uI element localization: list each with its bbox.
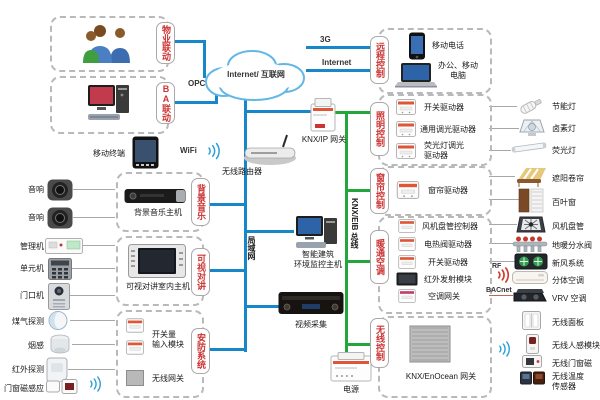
hvac-tab: 暖通空调 [370, 230, 389, 284]
property-link-line [172, 40, 206, 43]
wireless-panel-icon [522, 311, 541, 330]
security-link-line [206, 348, 246, 351]
connector-line [70, 295, 115, 296]
wireless-waves-icon [497, 338, 511, 360]
remote-tab: 远程控制 [370, 36, 389, 84]
power-label: 电源 [336, 385, 366, 395]
din-module-icon [398, 219, 416, 233]
curtain-driver-label: 窗帘驱动器 [428, 186, 468, 196]
vrv-ac-label: VRV 空调 [552, 294, 587, 304]
router-label: 无线路由器 [212, 167, 272, 177]
intercom-link-line [206, 269, 246, 272]
cfl-lamp-icon [516, 96, 546, 116]
building-host-pc-icon [294, 216, 342, 250]
fancoil-ctrl-label: 风机盘管控制器 [422, 222, 478, 232]
enocean-chip-icon [408, 324, 452, 364]
fresh-air-icon [514, 253, 548, 270]
split-ac-label: 分体空调 [552, 276, 584, 286]
office-pc-label: 办公、移动 电脑 [432, 61, 484, 80]
halogen-lamp-label: 卤素灯 [552, 124, 576, 134]
wifi-router-icon [243, 134, 297, 166]
din-module-icon [396, 121, 416, 137]
bacnet-label: BACnet [486, 286, 512, 296]
smoke-detector-icon [48, 334, 72, 356]
knxip-link-line [246, 110, 312, 113]
property-tab: 物业联动 [156, 22, 175, 64]
unit-machine-icon [48, 258, 72, 280]
wifi-label: WiFi [180, 146, 197, 156]
cloud-label: Internet/ 互联网 [210, 70, 302, 80]
wireless-tab: 无线控制 [370, 318, 389, 368]
wifi-waves-icon [206, 141, 221, 161]
intercom-host-label: 可视对讲室内主机 [118, 282, 198, 292]
security-tab: 安防系统 [191, 328, 210, 374]
connector-line [72, 268, 115, 269]
wireless-door-magnet-label: 无线门窗磁 [552, 359, 592, 369]
vrv-ac-icon [512, 287, 548, 303]
hvac-switch-driver-label: 开关驱动器 [428, 258, 468, 268]
connector-line [81, 245, 115, 246]
speaker-icon [47, 207, 73, 229]
music-host-icon [124, 188, 186, 204]
blinds-icon [518, 188, 544, 213]
gas-detector-icon [46, 311, 70, 330]
people-icon [82, 23, 137, 63]
din-module-icon [126, 318, 144, 333]
awning-icon [514, 166, 548, 188]
din-module-icon [396, 143, 416, 159]
building-host-label: 智能建筑 环境监控主机 [290, 250, 346, 269]
management-unit-icon [45, 238, 83, 254]
mobile-terminal-label: 移动终端 [93, 149, 125, 159]
connector-line [70, 320, 115, 321]
fl-dim-driver-label: 荧光灯调光 驱动器 [424, 141, 464, 160]
fluorescent-tube-icon [510, 141, 548, 154]
ir-emitter-icon [396, 272, 418, 286]
fan-coil-icon [516, 214, 546, 235]
connector-line [73, 217, 115, 218]
internet-cloud: Internet/ 互联网 [196, 44, 314, 106]
valve-driver-label: 电热阀驱动器 [424, 240, 472, 250]
door-magnet-icon [46, 379, 78, 394]
connector-line [73, 189, 115, 190]
video-capture-icon [278, 290, 344, 316]
wireless-temp-sensor-icon [520, 371, 545, 385]
wireless-pir-label: 无线人感模块 [552, 341, 600, 351]
knx-bus-label: KNX/EIB 总线 [350, 198, 359, 249]
cfl-lamp-label: 节能灯 [552, 102, 576, 112]
tablet-icon [132, 136, 159, 169]
rf-waves-icon [496, 266, 510, 284]
wireless-gw-label: 无线网关 [152, 374, 184, 384]
knx-bus-line [345, 111, 348, 357]
wireless-pir-icon [526, 334, 539, 354]
curtain-branch-line [346, 189, 372, 192]
speaker-label: 音响 [2, 185, 44, 195]
door-station-icon [48, 283, 70, 310]
curtain-tab: 窗帘控制 [370, 168, 389, 214]
manifold-icon [512, 234, 548, 252]
din-module-icon [396, 99, 416, 115]
halogen-lamp-icon [518, 118, 546, 138]
door-station-label: 门口机 [2, 291, 44, 301]
opc-label: OPC [188, 79, 205, 89]
ac-gateway-label: 空调网关 [428, 292, 460, 302]
connector-line [72, 344, 115, 345]
din-module-icon [396, 181, 420, 199]
connector-line [489, 150, 511, 151]
intercom-tab: 可视对讲 [191, 248, 210, 296]
video-link-line [246, 305, 280, 308]
connector-line [68, 369, 115, 370]
fluorescent-label: 荧光灯 [552, 146, 576, 156]
enocean-gw-label: KNX/EnOcean 网关 [396, 372, 486, 382]
connector-line [489, 176, 515, 177]
wireless-panel-label: 无线面板 [552, 318, 584, 328]
connector-line [489, 106, 517, 107]
connector-line [489, 128, 519, 129]
awning-label: 遮阳卷帘 [552, 174, 584, 184]
blinds-label: 百叶窗 [552, 198, 576, 208]
ba-tab: BA联动 [156, 82, 175, 124]
music-link-line [206, 203, 246, 206]
gas-detector-label: 煤气探测 [2, 317, 44, 327]
lighting-tab: 照明控制 [370, 102, 389, 156]
dim-driver-label: 通用调光驱动器 [420, 125, 476, 135]
pir-detector-label: 红外探测 [2, 365, 44, 375]
internet-label: Internet [322, 58, 351, 68]
split-ac-icon [512, 271, 548, 284]
din-module-icon [398, 289, 416, 303]
knx-smart-building-diagram: { "cloud": { "label": "Internet/ 互联网" },… [0, 0, 600, 400]
wireless-gateway-icon [126, 370, 144, 386]
connector-line [489, 199, 519, 200]
g3-label: 3G [320, 35, 331, 45]
wireless-temp-sensor-label: 无线温度 传感器 [552, 372, 584, 391]
music-host-label: 背景音乐主机 [116, 208, 200, 218]
connector-line [489, 224, 517, 225]
smoke-detector-label: 烟感 [2, 341, 44, 351]
desktop-pc-icon [86, 83, 134, 125]
host-link-line [246, 230, 294, 233]
knx-ip-gateway-icon [310, 98, 336, 132]
speaker-icon [47, 179, 73, 201]
connector-line [489, 243, 513, 244]
door-magnet-label: 门窗磁感应 [2, 384, 44, 394]
g3-line [306, 46, 371, 49]
internet-line [306, 69, 371, 72]
din-module-icon [398, 237, 416, 251]
power-supply-icon [330, 352, 372, 382]
wireless-waves-icon [88, 374, 102, 394]
unit-machine-label: 单元机 [2, 264, 44, 274]
mobile-phone-icon [408, 32, 426, 60]
di-module-label: 开关量 输入模块 [152, 330, 184, 349]
knx-ip-gw-label: KNX/IP 网关 [294, 135, 354, 145]
switch-driver-label: 开关驱动器 [424, 103, 464, 113]
mobile-phone-label: 移动电话 [432, 41, 464, 51]
music-tab: 背景音乐 [191, 178, 210, 226]
fan-coil-label: 风机盘管 [552, 222, 584, 232]
wireless-branch-line [346, 343, 372, 346]
ir-module-label: 红外发射模块 [424, 275, 472, 285]
intercom-monitor-icon [128, 244, 186, 278]
speaker-label: 音响 [2, 213, 44, 223]
manifold-label: 地暖分水阀 [552, 241, 592, 251]
video-capture-label: 视频采集 [288, 320, 334, 330]
wireless-door-magnet-icon [522, 355, 542, 368]
din-module-icon [398, 255, 416, 269]
fresh-air-label: 新风系统 [552, 259, 584, 269]
lan-label: 局域网 [247, 236, 256, 260]
hvac-branch-line [346, 260, 372, 263]
din-module-icon [126, 340, 144, 355]
management-unit-label: 管理机 [2, 242, 44, 252]
